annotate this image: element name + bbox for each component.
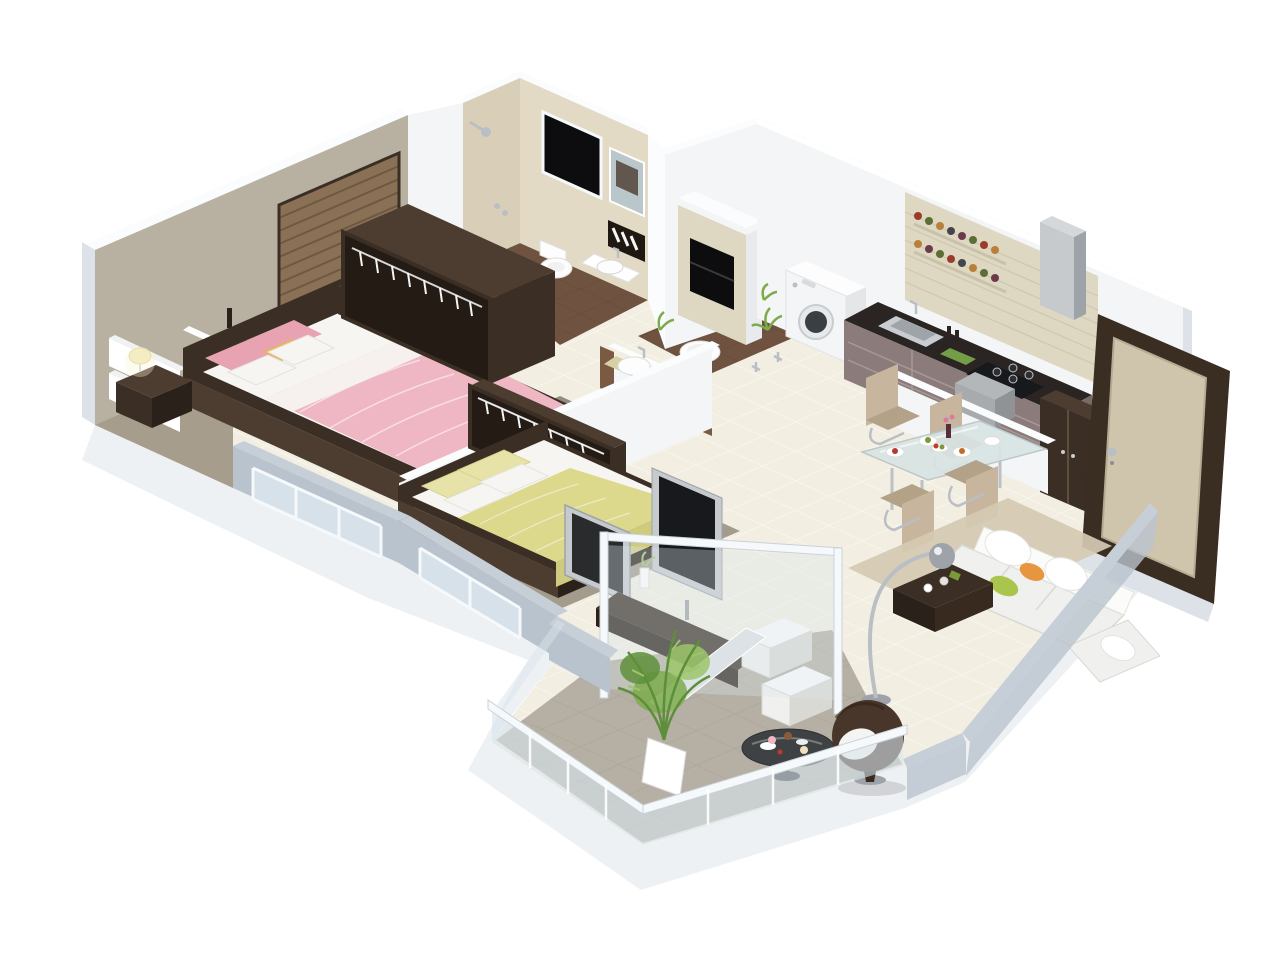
hall-column xyxy=(648,117,762,349)
cupcake xyxy=(768,736,776,744)
apartment-3d-scene xyxy=(0,0,1280,960)
giraffe-figurine xyxy=(227,308,232,328)
bottle xyxy=(955,330,959,341)
food xyxy=(892,448,898,454)
cupcake xyxy=(784,732,792,740)
food xyxy=(959,448,965,454)
plate xyxy=(796,739,808,745)
bottle xyxy=(947,326,951,338)
outer-wall-edge xyxy=(82,242,95,425)
food xyxy=(925,437,931,443)
cupcake xyxy=(800,746,808,754)
chimney-hood xyxy=(1040,216,1086,320)
lamp-sphere xyxy=(929,543,955,569)
door-handle xyxy=(1108,448,1117,457)
floor-plan-render xyxy=(0,0,1280,960)
plate xyxy=(984,437,1000,446)
table-lamp xyxy=(129,348,151,364)
flower-vase xyxy=(946,424,951,438)
